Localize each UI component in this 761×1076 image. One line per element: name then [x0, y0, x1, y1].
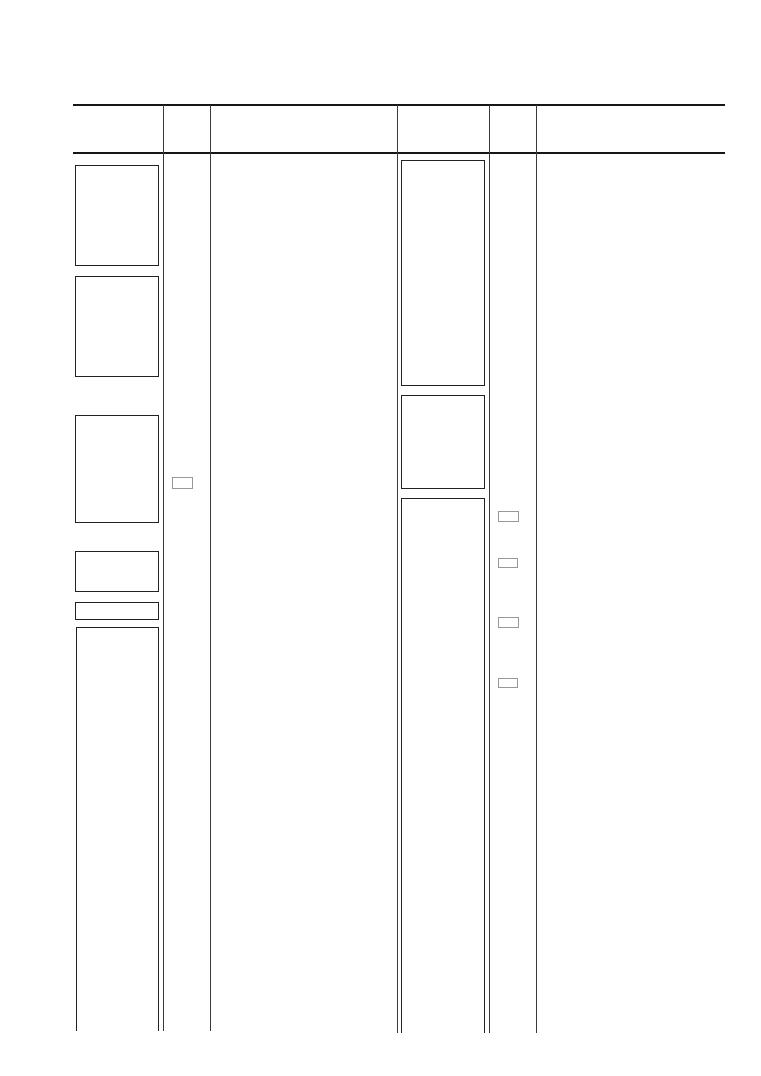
left-box-5: [75, 602, 159, 620]
mini-rect-5: [498, 678, 518, 688]
middle-box-3: [401, 498, 485, 1033]
column-divider-1: [163, 105, 164, 1031]
mini-rect-3: [498, 558, 518, 568]
mini-rect-2: [498, 511, 519, 522]
middle-box-2: [401, 395, 485, 489]
left-box-1: [75, 165, 159, 266]
column-divider-4: [489, 105, 490, 1033]
left-box-4: [75, 551, 159, 592]
left-box-3: [75, 415, 159, 523]
header-top-rule: [73, 104, 725, 106]
column-divider-5: [536, 105, 537, 1033]
left-box-6: [76, 627, 159, 1031]
column-divider-3: [397, 105, 398, 1033]
header-bottom-rule: [73, 152, 725, 154]
mini-rect-1: [172, 477, 193, 489]
middle-box-1: [401, 160, 485, 386]
column-divider-2: [210, 105, 211, 1031]
document-page: [0, 0, 761, 1076]
left-box-2: [75, 276, 159, 377]
mini-rect-4: [498, 617, 519, 628]
